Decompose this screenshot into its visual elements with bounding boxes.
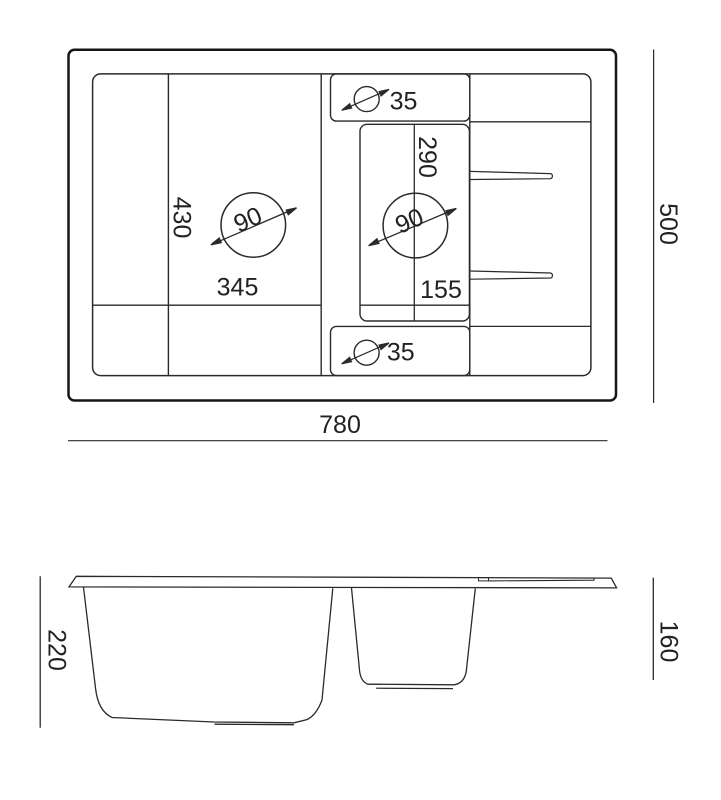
svg-text:220: 220	[42, 629, 70, 671]
svg-text:35: 35	[390, 88, 418, 116]
svg-text:155: 155	[420, 276, 462, 304]
svg-text:780: 780	[319, 411, 361, 439]
svg-text:35: 35	[387, 339, 415, 367]
svg-text:345: 345	[217, 274, 259, 302]
svg-text:290: 290	[413, 136, 441, 178]
svg-text:430: 430	[167, 197, 195, 239]
svg-text:500: 500	[654, 203, 682, 245]
svg-text:160: 160	[654, 621, 682, 663]
